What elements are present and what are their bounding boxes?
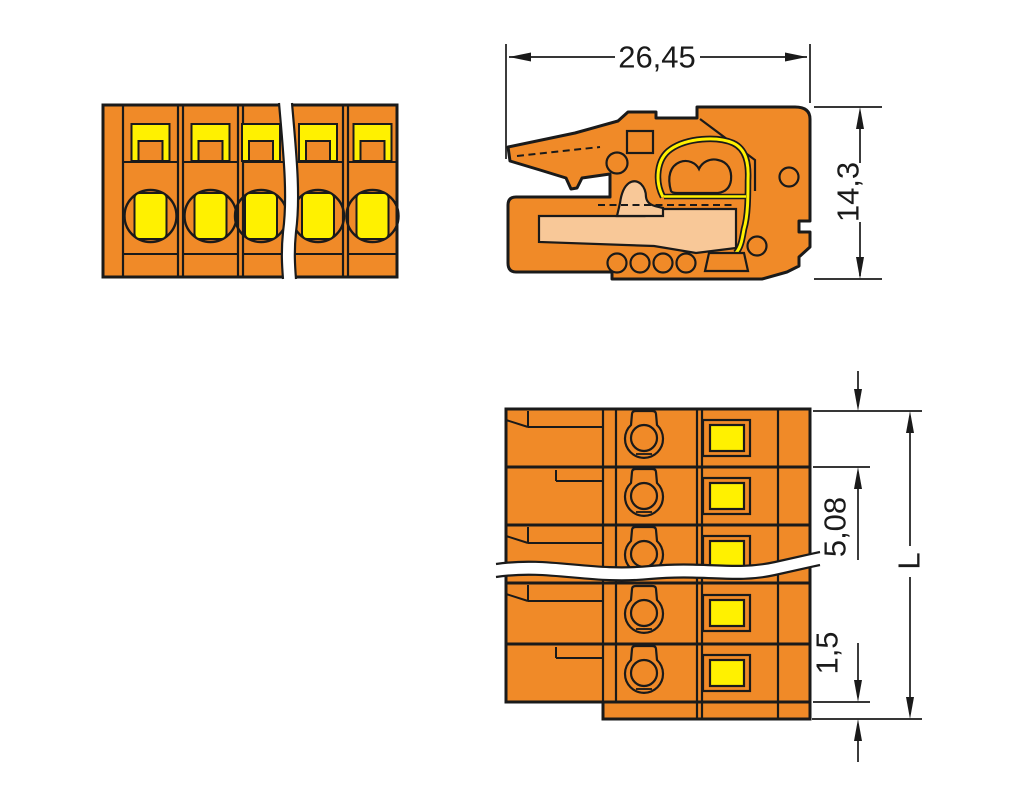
wire-entry-slot [135,193,167,239]
lever-window [710,425,744,451]
dim-label-pitch: 5,08 [818,497,853,557]
dimension-total-length: L [892,411,927,719]
technical-drawing-canvas: 26,45 14,3 [0,0,1013,790]
dimension-flange: 1,5 [810,631,923,762]
top-view: 5,08 1,5 L [496,371,927,762]
lever-window [710,541,744,567]
dimension-pitch: 5,08 [813,371,922,560]
lever-window [710,483,744,509]
test-slot-square [627,131,653,153]
housing-hole-upper [780,168,799,187]
lever-window [710,600,744,626]
technical-drawing-page: 26,45 14,3 [0,0,1013,790]
dim-label-depth: 26,45 [618,40,696,75]
wire-entry-slot [195,193,227,239]
wire-entry-slot [302,193,334,239]
dim-label-total-length: L [892,552,927,569]
lever-window [710,660,744,686]
front-view [103,103,399,279]
side-view-cross-section: 26,45 14,3 [506,40,882,280]
pivot-circle [607,153,628,174]
wire-entry-slot [245,193,277,239]
dim-label-height: 14,3 [831,162,866,222]
support-foot [705,253,748,271]
dim-label-flange: 1,5 [810,631,845,674]
wire-entry-slot [357,193,389,239]
dimension-height: 14,3 [814,107,882,279]
housing-hole-lower [748,237,767,256]
